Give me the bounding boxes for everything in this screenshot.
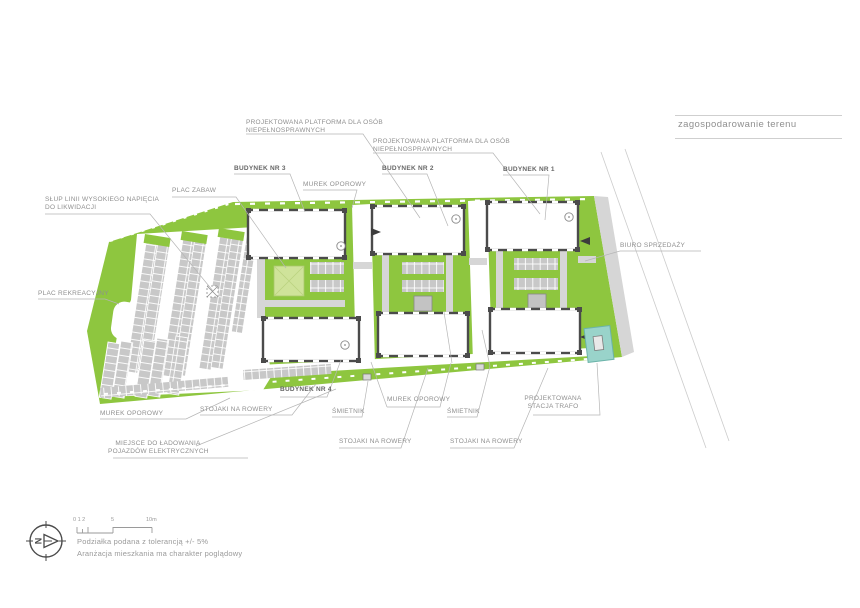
building-4-shape — [263, 318, 359, 361]
footer-note-tolerance: Podziałka podana z tolerancją +/- 5% — [77, 537, 208, 546]
page-title: zagospodarowanie terenu — [678, 119, 797, 130]
label-retaining-wall-mid: MUREK OPOROWY — [387, 396, 450, 404]
building-1-shape — [487, 202, 578, 250]
building-5-shape — [378, 313, 468, 356]
compass-letter: N — [33, 538, 43, 545]
waste-shelter — [363, 374, 371, 380]
label-bike-racks-left: STOJAKI NA ROWERY — [200, 406, 273, 414]
label-waste-right: ŚMIETNIK — [447, 408, 480, 416]
label-building-3: BUDYNEK NR 3 — [234, 165, 286, 173]
label-building-1: BUDYNEK NR 1 — [503, 166, 555, 174]
building-6-shape — [490, 309, 580, 353]
label-recreation-area: PLAC REKREACYJNY — [38, 290, 109, 298]
label-platform-disabled-mid: PROJEKTOWANA PLATFORMA DLA OSÓB NIEPEŁNO… — [373, 138, 510, 154]
scale-tick-10m: 10m — [146, 517, 157, 523]
pylon-marker — [207, 286, 218, 297]
label-trafo-station: PROJEKTOWANA STACJA TRAFO — [516, 395, 590, 411]
label-platform-disabled-top: PROJEKTOWANA PLATFORMA DLA OSÓB NIEPEŁNO… — [246, 119, 383, 135]
label-bike-racks-mid: STOJAKI NA ROWERY — [339, 438, 412, 446]
label-ev-charging: MIEJSCE DO ŁADOWANIA POJAZDÓW ELEKTRYCZN… — [108, 440, 208, 456]
building-3-shape — [248, 210, 345, 258]
footer-note-disclaimer: Aranżacja mieszkania ma charakter pogląd… — [77, 549, 242, 558]
scale-tick-5: 5 — [111, 517, 114, 523]
label-playground: PLAC ZABAW — [172, 187, 216, 195]
label-building-2: BUDYNEK NR 2 — [382, 165, 434, 173]
label-retaining-wall-top: MUREK OPOROWY — [303, 181, 366, 189]
label-sales-office: BIURO SPRZEDAŻY — [620, 242, 685, 250]
site-plan-page: N zagospodarowanie terenu PROJEKTOWANA P… — [0, 0, 860, 608]
label-power-pylon: SŁUP LINII WYSOKIEGO NAPIĘCIA DO LIKWIDA… — [45, 196, 159, 212]
header-rule-bottom — [675, 138, 842, 139]
label-retaining-wall-left: MUREK OPOROWY — [100, 410, 163, 418]
compass-icon: N — [26, 521, 66, 561]
label-building-4: BUDYNEK NR 4 — [280, 386, 332, 394]
header-rule-top — [675, 115, 842, 116]
waste-shelter — [476, 364, 484, 370]
building-2-shape — [372, 206, 464, 254]
trafo-station-shape — [584, 326, 614, 363]
label-bike-racks-right: STOJAKI NA ROWERY — [450, 438, 523, 446]
scale-tick-012: 0 1 2 — [73, 517, 85, 523]
label-waste-left: ŚMIETNIK — [332, 408, 365, 416]
site-plan-drawing: N — [0, 0, 860, 608]
scale-bar — [77, 527, 152, 533]
